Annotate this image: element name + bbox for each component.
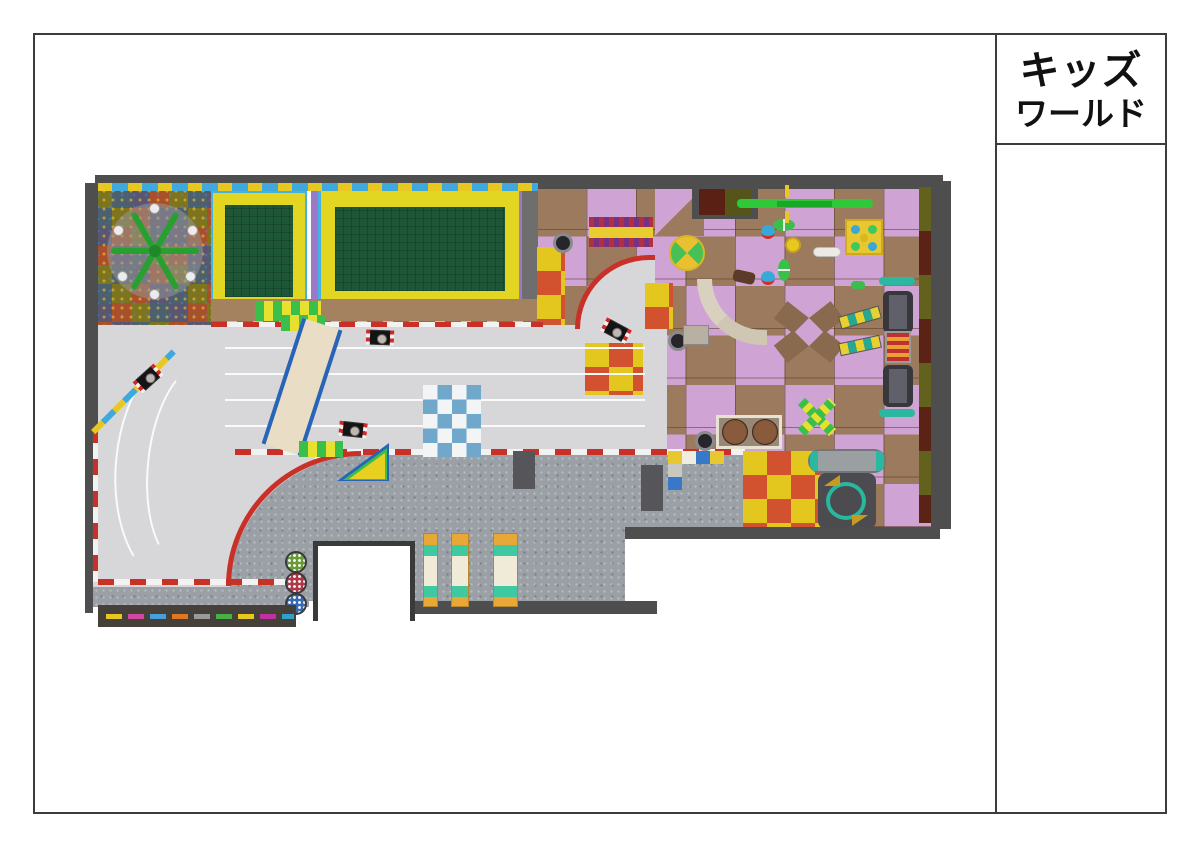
pillar: [513, 451, 535, 489]
zipline-post-mark: [785, 211, 789, 223]
barrel-roller: [716, 415, 782, 449]
dice-block: [845, 219, 883, 255]
dice-dot: [851, 225, 860, 234]
page-title-line1: キッズ: [1020, 47, 1143, 95]
spiral-slide-ring: [826, 482, 866, 520]
outside-cutout: [625, 539, 753, 603]
soft-block: [668, 464, 682, 477]
bench-locker: [451, 533, 469, 607]
border-dashed-top: [98, 183, 538, 191]
wall-right-strip: [919, 187, 931, 523]
bridge-step-bottom: [299, 441, 343, 457]
zipline-trolley: [777, 201, 832, 207]
shoe-shelf: [98, 605, 296, 627]
slide-dark: [883, 365, 913, 407]
slide-lane: [889, 295, 907, 329]
stool-red: [285, 572, 307, 594]
soft-block: [710, 451, 724, 464]
go-kart: [367, 330, 394, 346]
floor-plan: [85, 175, 953, 627]
bench-locker: [493, 533, 518, 607]
arrow-marker: [824, 475, 840, 486]
barrel: [722, 419, 748, 445]
teal-bar: [879, 277, 915, 285]
barrel: [752, 419, 778, 445]
merry-seat: [117, 271, 128, 282]
wall-bottom-right: [625, 527, 940, 539]
merry-seat: [187, 225, 198, 236]
spring-toy: [761, 271, 775, 285]
track-curb: [98, 579, 298, 585]
dice-dot: [868, 225, 877, 234]
teal-bar: [879, 409, 915, 417]
shelf-item: [172, 614, 188, 619]
wall-left-lower: [85, 433, 93, 613]
page-title-line2: ワールド: [1015, 95, 1147, 135]
soft-block: [696, 451, 710, 464]
entrance-notch: [313, 541, 415, 621]
shelf-item: [106, 614, 122, 619]
checker-mat: [645, 283, 673, 329]
trampoline-2-bed: [335, 207, 505, 291]
checker-mat: [537, 247, 565, 325]
zipline-post-mark: [785, 185, 789, 197]
merry-seat: [113, 225, 124, 236]
roller-crawl-band: [589, 227, 653, 238]
spinner-wheel: [669, 235, 705, 271]
shelf-item: [216, 614, 232, 619]
conveyor-cap: [810, 451, 818, 471]
track-curb: [211, 322, 543, 327]
merry-seat: [185, 271, 196, 282]
title-box-divider: [997, 143, 1165, 145]
dice-dot: [868, 242, 877, 251]
trampoline-1-bed: [225, 205, 293, 297]
crawl-hole: [553, 233, 573, 253]
title-column-divider: [995, 35, 997, 812]
checker-mat: [585, 343, 643, 395]
dice-dot: [851, 242, 860, 251]
dice-center: [860, 234, 868, 242]
infield-carpet-lower: [93, 587, 309, 607]
wall-left: [85, 183, 98, 433]
merry-go-round: [107, 203, 203, 299]
zipline: [737, 199, 873, 208]
merry-seat: [149, 203, 160, 214]
soft-block: [668, 477, 682, 490]
shelf-item: [282, 614, 294, 619]
slide-dark: [883, 291, 913, 333]
tube-slide-exit: [683, 325, 709, 345]
shelf-item: [128, 614, 144, 619]
go-kart: [339, 421, 366, 439]
trampoline-divider: [311, 187, 318, 309]
butterfly-toy: [778, 259, 790, 281]
crawl-hole: [695, 431, 715, 451]
soft-block: [682, 451, 696, 464]
bench-locker: [423, 533, 438, 607]
merry-go-round-hub: [149, 245, 161, 257]
merry-seat: [149, 289, 160, 300]
stool-green: [285, 551, 307, 573]
slide-lane: [889, 369, 907, 403]
soft-block: [668, 451, 682, 464]
spinner-seat: [785, 237, 801, 253]
conveyor: [808, 449, 886, 473]
shelf-item: [238, 614, 254, 619]
x-crossing: [773, 301, 845, 363]
shelf-item: [260, 614, 276, 619]
pinwheel: [795, 395, 839, 439]
shelf-item: [150, 614, 166, 619]
wall-right: [931, 181, 951, 529]
butterfly-toy: [773, 219, 795, 231]
handle-bar: [851, 281, 865, 289]
roller-slide: [885, 331, 911, 363]
pillar: [641, 465, 663, 511]
track-curb: [93, 427, 98, 582]
spiral-slide: [818, 473, 876, 529]
arrow-marker: [852, 515, 868, 526]
conveyor-cap: [876, 451, 884, 471]
title-block: キッズ ワールド: [997, 42, 1165, 140]
shelf-item: [194, 614, 210, 619]
lane-line: [225, 347, 645, 349]
bench-seat: [813, 247, 841, 257]
crosswalk: [423, 385, 481, 457]
